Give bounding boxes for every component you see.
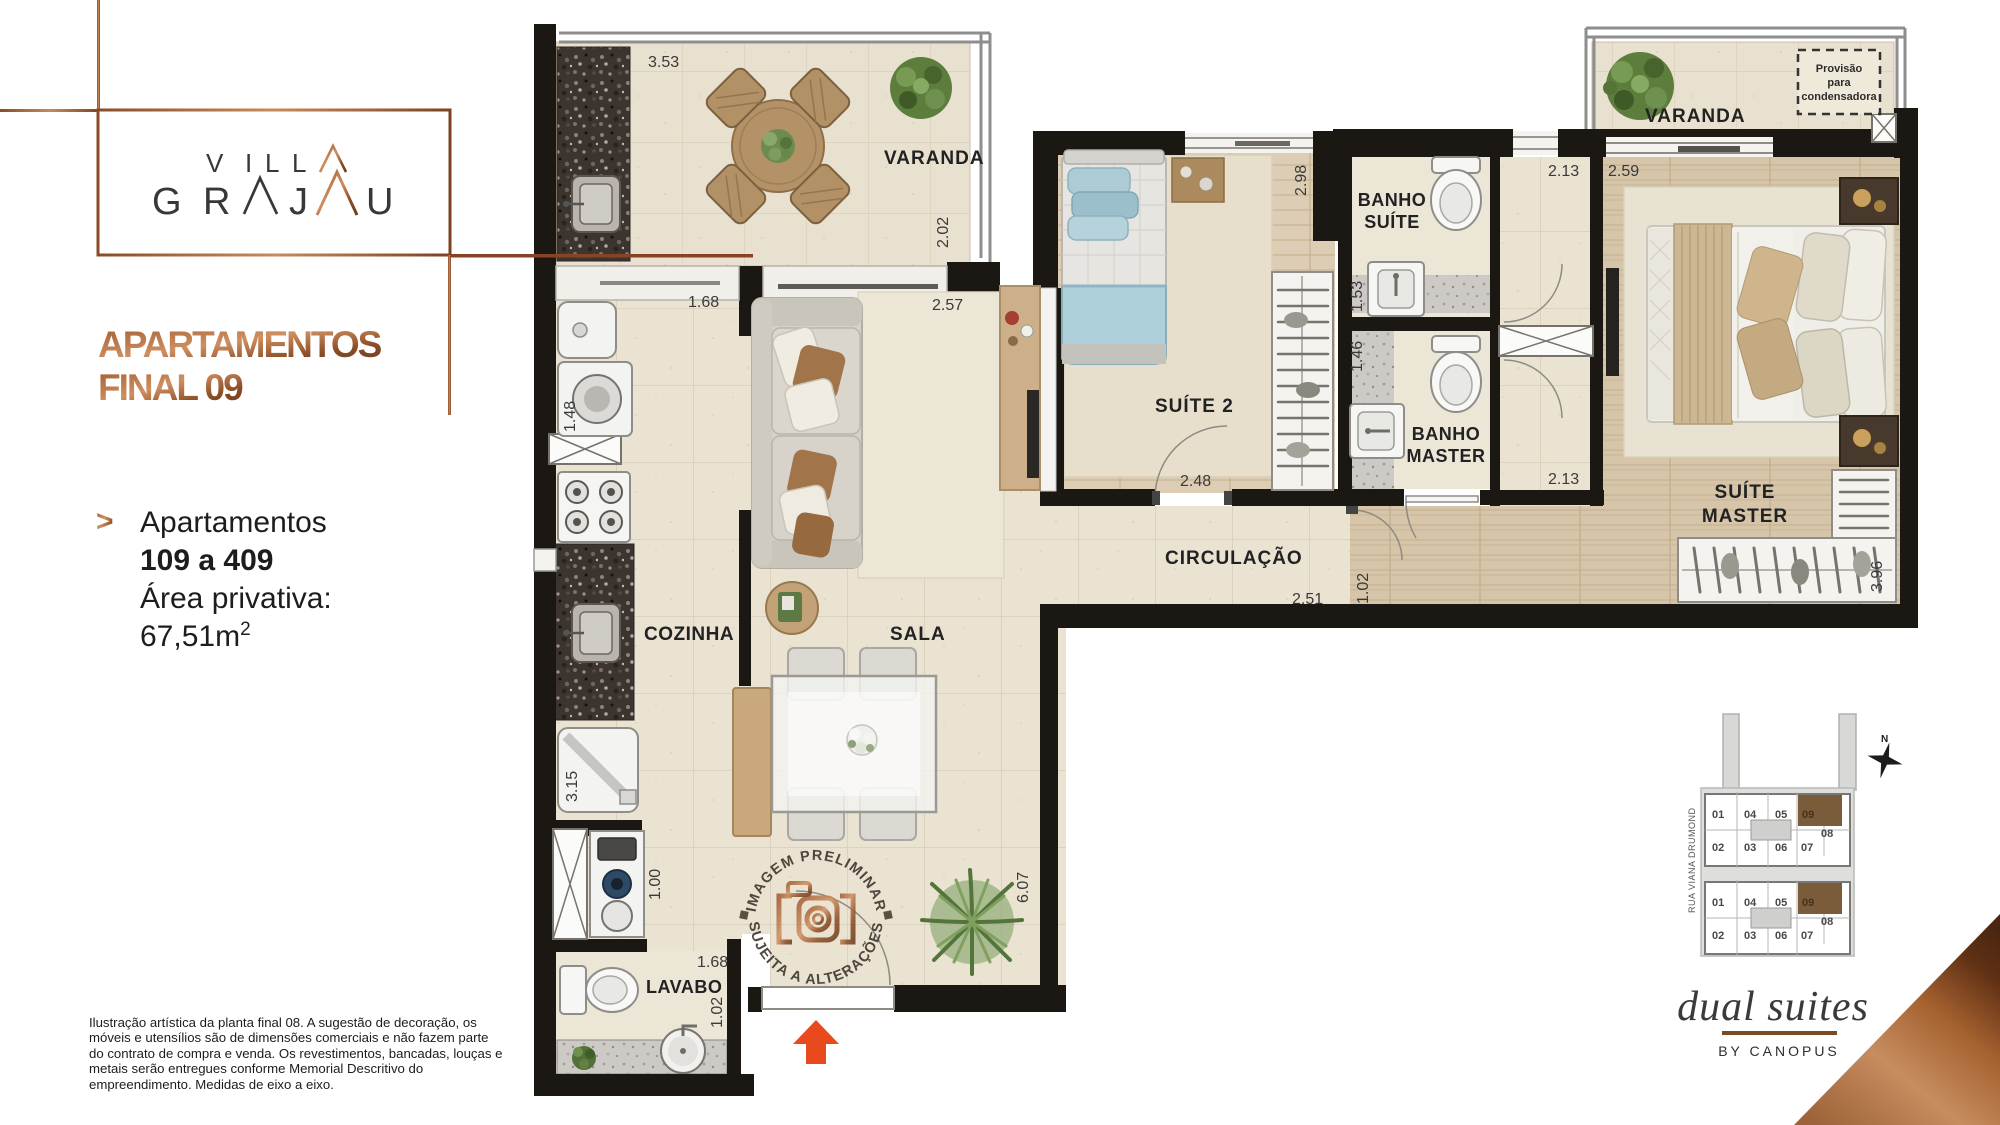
svg-text:2.02: 2.02 [935,217,952,248]
svg-text:09: 09 [1802,897,1814,909]
svg-text:R: R [203,181,230,223]
svg-text:CIRCULAÇÃO: CIRCULAÇÃO [1165,547,1303,569]
svg-text:SUÍTE: SUÍTE [1364,211,1420,232]
svg-text:móveis e utensílios são de dim: móveis e utensílios são de dimensões com… [89,1030,489,1045]
svg-text:06: 06 [1775,930,1787,942]
svg-text:1.68: 1.68 [688,294,719,311]
svg-text:do contrato de compra e venda.: do contrato de compra e venda. Os revest… [89,1046,502,1061]
svg-text:LAVABO: LAVABO [646,977,722,997]
svg-text:G: G [152,181,182,223]
svg-text:01: 01 [1712,897,1724,909]
svg-text:3.53: 3.53 [648,54,679,71]
svg-text:04: 04 [1744,897,1757,909]
svg-text:2.51: 2.51 [1292,591,1323,608]
svg-text:VARANDA: VARANDA [884,148,985,169]
svg-text:FINAL 09: FINAL 09 [98,367,243,408]
svg-text:08: 08 [1821,916,1833,928]
svg-text:02: 02 [1712,842,1724,854]
svg-text:09: 09 [1802,809,1814,821]
svg-text:2.98: 2.98 [1293,165,1310,196]
svg-text:109 a 409: 109 a 409 [140,544,273,577]
svg-text:L: L [292,148,306,178]
svg-text:05: 05 [1775,809,1787,821]
svg-text:2.59: 2.59 [1608,163,1639,180]
svg-text:dual suites: dual suites [1677,984,1869,1030]
svg-text:01: 01 [1712,809,1724,821]
svg-text:N: N [1881,734,1888,745]
svg-text:08: 08 [1821,828,1833,840]
svg-text:BANHO: BANHO [1358,190,1427,210]
svg-text:03: 03 [1744,842,1756,854]
svg-text:metais serão entregues conform: metais serão entregues conforme Memorial… [89,1061,423,1076]
svg-text:06: 06 [1775,842,1787,854]
svg-text:2.57: 2.57 [932,297,963,314]
svg-text:03: 03 [1744,930,1756,942]
svg-text:SALA: SALA [890,624,946,645]
svg-text:07: 07 [1801,930,1813,942]
svg-text:Área privativa:: Área privativa: [140,582,332,615]
svg-text:V: V [206,148,224,178]
svg-text:J: J [289,181,308,223]
svg-text:3.96: 3.96 [1869,561,1886,592]
svg-text:condensadora: condensadora [1801,91,1877,103]
svg-text:1.02: 1.02 [1355,573,1372,604]
svg-text:1.53: 1.53 [1349,281,1366,312]
svg-text:empreendimento. Medidas de eix: empreendimento. Medidas de eixo a eixo. [89,1077,334,1092]
svg-text:L: L [265,148,279,178]
svg-text:67,51m2: 67,51m2 [140,619,251,653]
svg-text:I: I [245,148,252,178]
svg-text:1.46: 1.46 [1349,341,1366,372]
svg-text:BANHO: BANHO [1412,424,1481,444]
svg-text:Apartamentos: Apartamentos [140,506,327,539]
svg-text:APARTAMENTOS: APARTAMENTOS [98,324,382,365]
svg-text:1.02: 1.02 [709,997,726,1028]
svg-text:07: 07 [1801,842,1813,854]
svg-text:MASTER: MASTER [1702,506,1788,527]
svg-text:2.13: 2.13 [1548,163,1579,180]
svg-text:>: > [96,505,114,538]
svg-text:Ilustração artística da planta: Ilustração artística da planta final 08.… [89,1015,477,1030]
svg-text:SUÍTE: SUÍTE [1715,481,1776,503]
svg-text:04: 04 [1744,809,1757,821]
svg-text:SUÍTE 2: SUÍTE 2 [1155,395,1234,417]
svg-text:1.68: 1.68 [697,954,728,971]
svg-text:RUA VIANA DRUMOND: RUA VIANA DRUMOND [1687,807,1697,913]
svg-text:1.00: 1.00 [647,869,664,900]
svg-text:1.48: 1.48 [562,401,579,432]
svg-text:COZINHA: COZINHA [644,624,734,645]
svg-text:02: 02 [1712,930,1724,942]
svg-text:2.13: 2.13 [1548,471,1579,488]
svg-text:6.07: 6.07 [1015,872,1032,903]
svg-text:MASTER: MASTER [1407,446,1486,466]
svg-text:BY CANOPUS: BY CANOPUS [1718,1043,1840,1059]
svg-text:para: para [1827,77,1851,89]
svg-text:Provisão: Provisão [1816,63,1863,75]
svg-text:2.48: 2.48 [1180,473,1211,490]
svg-text:VARANDA: VARANDA [1645,106,1746,127]
svg-text:U: U [366,181,393,223]
svg-text:3.15: 3.15 [564,771,581,802]
svg-text:05: 05 [1775,897,1787,909]
